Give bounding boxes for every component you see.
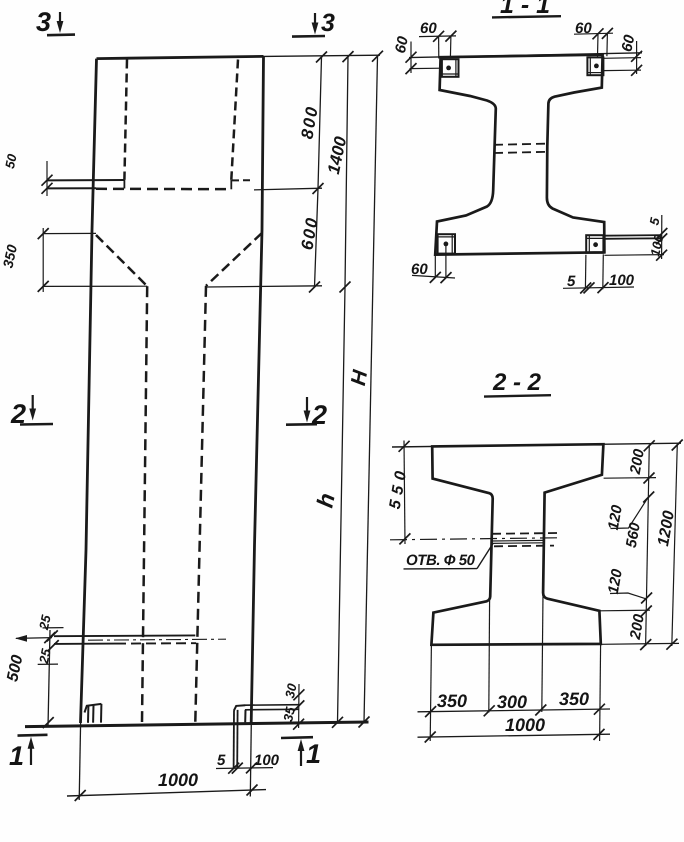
svg-text:120: 120 (605, 503, 626, 531)
svg-text:350: 350 (0, 243, 20, 269)
svg-text:60: 60 (618, 33, 638, 53)
svg-text:3: 3 (321, 9, 335, 37)
svg-text:500: 500 (4, 653, 26, 683)
svg-text:300: 300 (497, 692, 527, 712)
svg-text:50: 50 (2, 152, 20, 170)
svg-text:120: 120 (605, 567, 626, 595)
svg-text:100: 100 (254, 752, 280, 769)
svg-text:100: 100 (609, 272, 635, 289)
svg-text:25: 25 (36, 613, 54, 632)
svg-text:60: 60 (420, 20, 437, 37)
svg-text:350: 350 (559, 689, 589, 709)
svg-text:800: 800 (297, 105, 321, 140)
svg-text:2 - 2: 2 - 2 (492, 369, 542, 396)
svg-text:600: 600 (297, 216, 321, 251)
svg-text:1000: 1000 (158, 770, 198, 790)
svg-text:200: 200 (627, 612, 648, 641)
svg-text:ОТВ. Ф 50: ОТВ. Ф 50 (406, 552, 476, 569)
svg-text:1: 1 (306, 739, 321, 769)
svg-text:60: 60 (392, 34, 412, 54)
svg-text:200: 200 (627, 447, 648, 476)
svg-text:35: 35 (280, 705, 298, 723)
svg-text:1: 1 (9, 741, 24, 771)
svg-text:25: 25 (36, 647, 54, 666)
svg-text:5: 5 (567, 273, 576, 290)
svg-text:5: 5 (217, 752, 226, 769)
svg-text:2: 2 (311, 400, 327, 430)
svg-text:h: h (311, 491, 339, 510)
svg-text:350: 350 (437, 691, 467, 711)
svg-text:5: 5 (646, 216, 662, 227)
svg-text:H: H (347, 368, 372, 388)
svg-text:3: 3 (36, 7, 51, 37)
svg-text:560: 560 (623, 521, 644, 549)
svg-text:30: 30 (282, 681, 300, 699)
svg-text:1000: 1000 (505, 715, 545, 735)
svg-text:550: 550 (387, 470, 410, 510)
